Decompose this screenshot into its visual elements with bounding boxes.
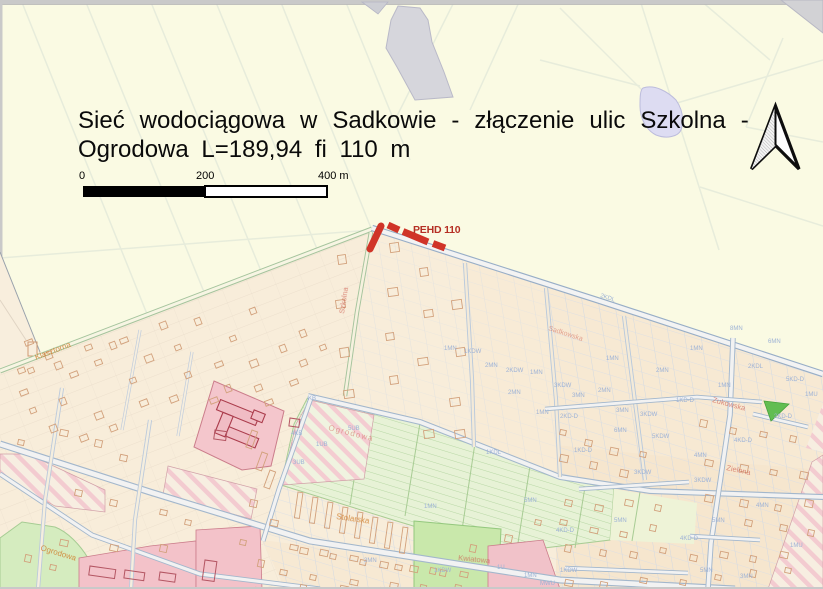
svg-text:3KDW: 3KDW bbox=[640, 412, 658, 418]
svg-text:1UB: 1UB bbox=[316, 442, 328, 448]
svg-text:1KD-D: 1KD-D bbox=[676, 398, 695, 404]
svg-text:0: 0 bbox=[79, 170, 85, 182]
svg-text:5UB: 5UB bbox=[348, 426, 360, 432]
svg-text:1MN: 1MN bbox=[718, 383, 731, 389]
svg-text:5KD-D: 5KD-D bbox=[786, 377, 805, 383]
svg-text:4KD-D: 4KD-D bbox=[680, 536, 699, 542]
svg-text:2KDL: 2KDL bbox=[748, 364, 764, 370]
svg-text:8MN: 8MN bbox=[730, 326, 743, 332]
svg-text:3MN: 3MN bbox=[616, 408, 629, 414]
svg-text:1MN: 1MN bbox=[536, 410, 549, 416]
svg-text:1KD-D: 1KD-D bbox=[574, 448, 593, 454]
svg-text:3UB: 3UB bbox=[293, 460, 305, 466]
svg-text:1KDL: 1KDL bbox=[486, 450, 502, 456]
svg-text:Sieć wodociągowa w Sadkowie -: Sieć wodociągowa w Sadkowie - złączenie … bbox=[78, 107, 749, 134]
svg-text:1MN: 1MN bbox=[606, 356, 619, 362]
svg-text:3KDW: 3KDW bbox=[634, 470, 652, 476]
svg-text:1U: 1U bbox=[497, 565, 505, 571]
svg-text:1MU: 1MU bbox=[790, 543, 803, 549]
svg-text:KB: KB bbox=[308, 396, 316, 402]
svg-text:200: 200 bbox=[196, 170, 214, 182]
svg-text:1MN: 1MN bbox=[444, 346, 457, 352]
svg-text:4KD-D: 4KD-D bbox=[734, 438, 753, 444]
svg-text:5MN: 5MN bbox=[524, 498, 537, 504]
svg-text:1MN: 1MN bbox=[690, 346, 703, 352]
svg-text:3KDW: 3KDW bbox=[554, 383, 572, 389]
svg-text:4MN: 4MN bbox=[756, 503, 769, 509]
svg-text:5MN: 5MN bbox=[700, 568, 713, 574]
svg-text:2KDW: 2KDW bbox=[506, 368, 524, 374]
svg-text:Ogrodowa L=189,94 fi 110 m: Ogrodowa L=189,94 fi 110 m bbox=[78, 136, 410, 163]
svg-text:2MN: 2MN bbox=[508, 390, 521, 396]
svg-text:2MN: 2MN bbox=[485, 363, 498, 369]
svg-text:6MN: 6MN bbox=[614, 428, 627, 434]
svg-text:1KDW: 1KDW bbox=[464, 349, 482, 355]
svg-text:2KD-D: 2KD-D bbox=[560, 414, 579, 420]
svg-text:3KDW: 3KDW bbox=[694, 478, 712, 484]
svg-text:1MN: 1MN bbox=[424, 504, 437, 510]
svg-text:5MN: 5MN bbox=[614, 518, 627, 524]
svg-text:2MN: 2MN bbox=[656, 368, 669, 374]
svg-text:3MN: 3MN bbox=[572, 393, 585, 399]
svg-text:400 m: 400 m bbox=[318, 170, 349, 182]
svg-text:1MN: 1MN bbox=[524, 573, 537, 579]
svg-text:1KDW: 1KDW bbox=[560, 568, 578, 574]
svg-text:2KD-D: 2KD-D bbox=[774, 414, 793, 420]
svg-text:4MN: 4MN bbox=[694, 453, 707, 459]
svg-text:6MN: 6MN bbox=[768, 339, 781, 345]
svg-text:3MN: 3MN bbox=[740, 574, 753, 580]
svg-text:4KB: 4KB bbox=[291, 431, 302, 437]
svg-text:MWU: MWU bbox=[540, 581, 555, 587]
svg-text:2MN: 2MN bbox=[598, 388, 611, 394]
svg-text:1KDW: 1KDW bbox=[434, 568, 452, 574]
svg-text:PEHD 110: PEHD 110 bbox=[413, 224, 461, 236]
svg-text:5KDW: 5KDW bbox=[652, 434, 670, 440]
svg-text:3MN: 3MN bbox=[364, 558, 377, 564]
svg-text:1MU: 1MU bbox=[805, 392, 818, 398]
svg-text:1MN: 1MN bbox=[530, 370, 543, 376]
svg-text:5MN: 5MN bbox=[712, 518, 725, 524]
svg-text:4KD-D: 4KD-D bbox=[556, 528, 575, 534]
